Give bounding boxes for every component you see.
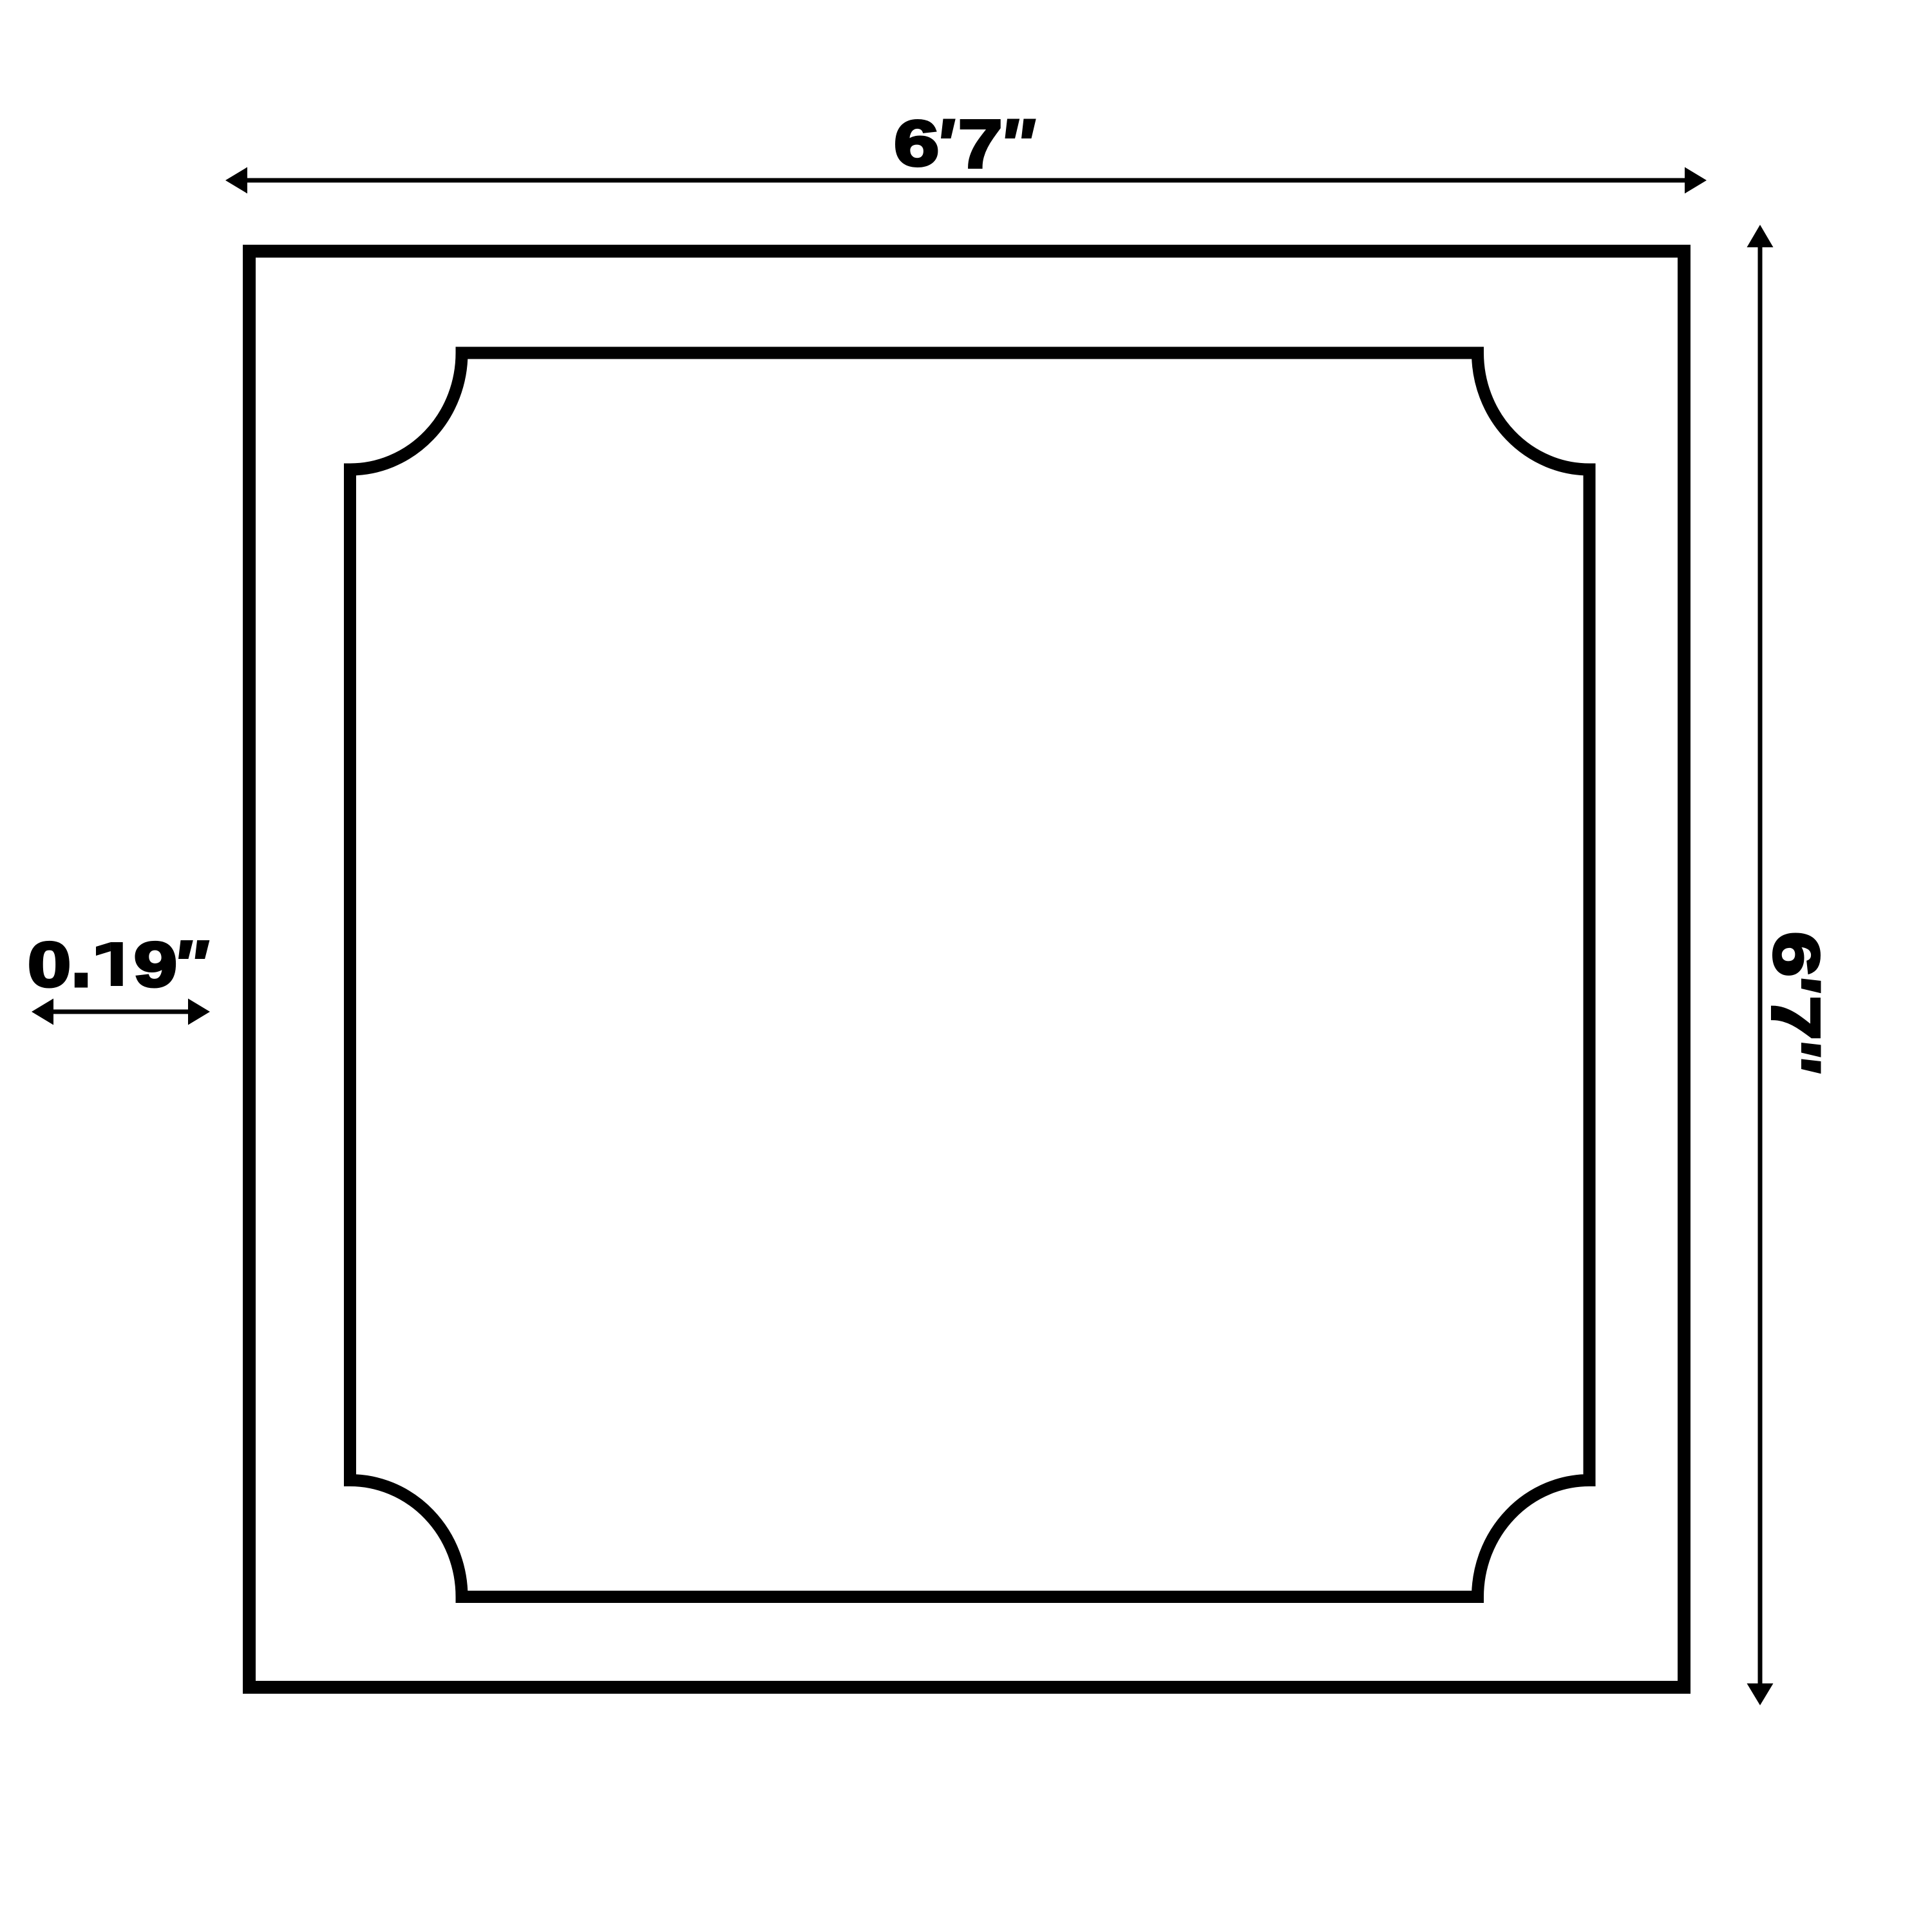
svg-text:7: 7	[958, 106, 1003, 182]
svg-text:0: 0	[28, 929, 71, 1000]
svg-text:7: 7	[1757, 996, 1833, 1040]
svg-text:9: 9	[134, 929, 177, 1000]
svg-text:6: 6	[894, 108, 940, 180]
svg-text:6: 6	[1760, 931, 1832, 977]
